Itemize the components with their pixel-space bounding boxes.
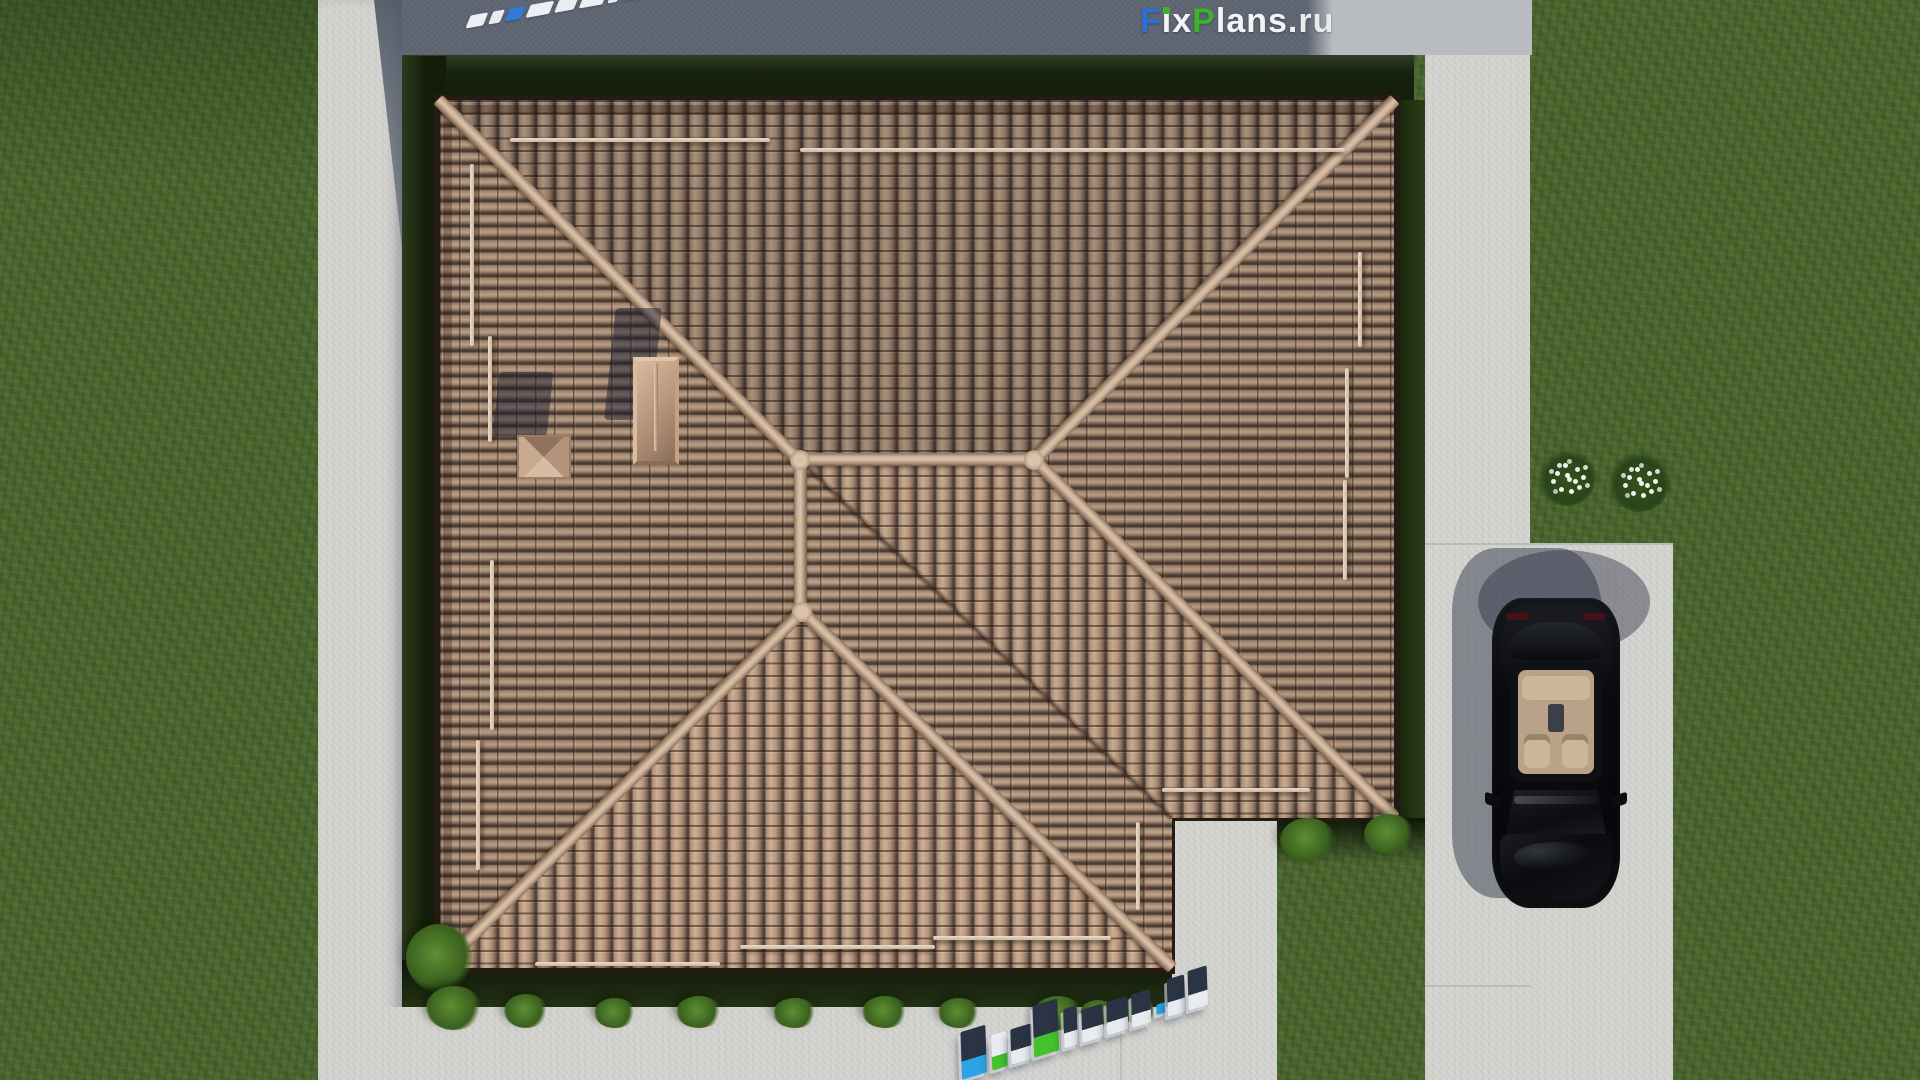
logo-letter: . (1288, 2, 1298, 40)
bush (1280, 818, 1336, 862)
brand-logo-text: FixPlans.ru (1140, 2, 1334, 40)
logo-letter: r (1298, 2, 1312, 40)
watermark-letter (1063, 1005, 1078, 1048)
snow-guard (490, 560, 494, 730)
bush (862, 996, 908, 1028)
logo-letter: i (1162, 2, 1172, 40)
car-taillight-right (1582, 613, 1606, 620)
bush (773, 998, 817, 1028)
bush (1364, 814, 1414, 854)
watermark-letter (1106, 996, 1128, 1036)
watermark-letter (991, 1031, 1008, 1071)
bush (426, 986, 482, 1030)
walkway-left (318, 0, 402, 1080)
logo-letter: a (1226, 2, 1246, 40)
logo-letter: x (1172, 2, 1192, 40)
logo-letter: F (1140, 2, 1162, 40)
logo-letter: s (1268, 2, 1288, 40)
brand-logo: FixPlans.ru (1140, 2, 1334, 41)
walkway-top-lit (1307, 0, 1532, 55)
hip-roof (440, 100, 1394, 968)
walkway-left-shadow-wedge (318, 0, 402, 250)
car-hood (1500, 834, 1612, 900)
logo-letter: u (1313, 2, 1335, 40)
watermark-letter (1081, 1003, 1103, 1043)
car-seat-right (1562, 734, 1588, 768)
watermark-letter (960, 1025, 987, 1080)
bush (594, 998, 636, 1028)
snow-guard (488, 336, 492, 442)
car-rear-bench (1522, 676, 1590, 700)
snow-guard (933, 936, 1111, 940)
logo-letter: P (1192, 2, 1216, 40)
ridge-junction (792, 602, 812, 622)
watermark-letter (1032, 998, 1059, 1057)
car-sunroof-interior (1518, 670, 1594, 774)
logo-letter: n (1246, 2, 1268, 40)
driveway-joint (1425, 543, 1673, 545)
snow-guard (470, 164, 474, 346)
snow-guard (740, 945, 935, 949)
snow-guard (1343, 480, 1347, 580)
bush (406, 924, 472, 992)
logo-letter: l (1216, 2, 1226, 40)
flower-bush (1608, 450, 1670, 512)
flower-blossoms (1639, 481, 1644, 486)
parked-car (1492, 598, 1620, 908)
watermark-letter (1010, 1023, 1032, 1065)
eave-tile-shadow (448, 105, 1382, 115)
bush (504, 994, 548, 1028)
windshield-reflection (1514, 796, 1598, 804)
watermark-letter (1131, 989, 1151, 1028)
ridge-cap-center (794, 460, 807, 612)
watermark-letter (1167, 974, 1186, 1017)
hood-reflection (1514, 842, 1598, 872)
car-seat-left (1524, 734, 1550, 768)
chimney (633, 357, 679, 465)
chimney-cap-ridge (654, 363, 658, 451)
skylight (517, 435, 571, 479)
skylight-shadow (493, 372, 554, 436)
snow-guard (510, 138, 770, 142)
watermark-letter (1156, 1002, 1166, 1015)
car-taillight-left (1506, 613, 1530, 620)
car-roof (1510, 662, 1602, 782)
bush (676, 996, 722, 1028)
car-windshield (1506, 790, 1606, 834)
snow-guard (1162, 788, 1310, 792)
driveway-joint (1425, 985, 1530, 987)
eave-tile-shadow (443, 108, 452, 958)
aerial-house-render: FixPlans.ru (0, 0, 1920, 1080)
ridge-cap-main (800, 453, 1034, 466)
ridge-junction (790, 450, 810, 470)
snow-guard (1345, 368, 1349, 478)
snow-guard (1136, 822, 1140, 910)
snow-guard (800, 148, 1345, 152)
snow-guard (535, 962, 720, 966)
snow-guard (476, 740, 480, 870)
sidewalk-right (1425, 55, 1530, 543)
flower-blossoms (1567, 477, 1572, 482)
flower-bush (1538, 448, 1596, 506)
car-console (1548, 704, 1564, 732)
snow-guard (1358, 252, 1362, 347)
watermark-letter (1187, 965, 1207, 1010)
ridge-junction (1024, 450, 1044, 470)
